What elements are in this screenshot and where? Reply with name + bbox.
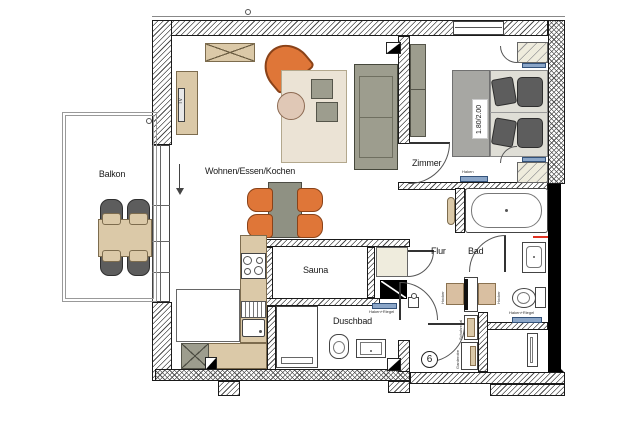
dining-chair: [297, 188, 323, 212]
kitchen-faucet-dot: [259, 330, 262, 333]
bed-size-label: 1.80/2.00: [472, 99, 488, 139]
bedroom-cabinet: [410, 44, 426, 137]
wall-right-crosshatch: [548, 20, 565, 184]
room-label-sauna: Sauna: [303, 265, 328, 275]
stove-burner: [244, 268, 251, 275]
haken-label: Haken: [462, 170, 474, 174]
toilet-bowl-inner: [517, 292, 530, 304]
room-label-flur: Flur: [431, 246, 446, 256]
kitchen-tall-cabinet: [176, 289, 240, 342]
red-marker-line: [533, 236, 548, 238]
entry-direction-arrow: [179, 164, 180, 188]
toilet-duschbad-inner: [333, 341, 345, 354]
room-label-balkon: Balkon: [82, 169, 142, 179]
wall-bottom-right-lower: [490, 384, 565, 396]
kitchen-sink: [242, 319, 265, 337]
room-label-zimmer: Zimmer: [412, 158, 441, 168]
wall-bad-bottom: [485, 322, 548, 330]
hocker-label-right: Hocker: [497, 284, 501, 304]
drainboard: [241, 301, 266, 318]
wardrobe: [517, 42, 548, 63]
wall-table-edge: [464, 279, 468, 310]
bed-duvet: [517, 77, 543, 107]
door-leaf-entrance: [428, 323, 465, 325]
wall-stub-bottom-a: [218, 381, 240, 396]
wall-bottom-left: [155, 369, 410, 381]
room-label-bad: Bad: [468, 246, 483, 256]
corner-symbol: [205, 357, 217, 370]
side-table: [277, 92, 305, 120]
shelf-upper-inner: [467, 318, 475, 337]
wardrobe: [517, 162, 548, 183]
wall-stub-bottom-b: [388, 381, 410, 393]
stool-left: [446, 283, 464, 305]
stove-burner: [256, 257, 263, 264]
window-bedroom-top-line: [455, 27, 502, 28]
floor-plan: TV Haken+Riegel 1.80/2.00 Haken: [0, 0, 640, 427]
roof-edge-line: [152, 16, 565, 17]
dining-chair: [247, 188, 273, 212]
shelf-lower-inner: [470, 346, 476, 366]
shower-bench: [281, 357, 313, 364]
unit-number-badge: 6: [421, 351, 438, 368]
balcony-seat-cushion: [102, 213, 121, 225]
bedroom-cabinet-split: [410, 89, 426, 90]
wall-stub-tub: [455, 188, 465, 233]
sideboard: [205, 43, 255, 62]
floor-cushion: [311, 79, 333, 99]
balcony-seat-cushion: [129, 213, 148, 225]
corner-symbol: [386, 42, 401, 54]
tv-screen: [178, 88, 185, 122]
bed-duvet: [517, 118, 543, 148]
wall-shaft-black: [548, 184, 561, 372]
bed-pillow: [491, 76, 517, 106]
stove-burner: [254, 266, 263, 275]
bed-mattress-split: [490, 112, 548, 113]
balcony-seat-cushion: [102, 250, 121, 262]
sink-duschbad-bowl: [360, 342, 382, 355]
tv-label: TV: [179, 98, 184, 104]
dining-chair: [297, 214, 323, 238]
haken-riegel-label-flur: Haken+Riegel: [369, 310, 394, 314]
flur-closet: [376, 247, 408, 277]
sink-duschbad-dot: [370, 350, 372, 352]
corner-symbol: [387, 358, 401, 371]
wall-stub-shower: [267, 306, 276, 370]
hocker-label-left: Hocker: [441, 284, 445, 304]
bathtub-drain-dot: [505, 209, 508, 212]
haken-riegel-label-bad: Haken+Riegel: [509, 311, 534, 315]
entry-shelf-inner: [530, 337, 533, 363]
sauna-wall-right: [367, 247, 375, 298]
roof-drain-icon: [245, 9, 251, 15]
haken-rail-bedroom: [460, 176, 488, 182]
wall-bottom-right: [410, 372, 565, 384]
sauna-wall-bottom: [265, 298, 380, 306]
bath-shelf: [447, 197, 455, 225]
stove-burner: [243, 256, 252, 265]
washbasin-drain-dot: [533, 256, 535, 258]
nightstand: [522, 157, 546, 162]
floor-cushion: [316, 102, 338, 122]
stool-right: [478, 283, 496, 305]
corner-symbol-black: [548, 356, 564, 372]
balcony-seat-cushion: [129, 250, 148, 262]
toilet-tank: [535, 287, 546, 308]
window-bedroom-top: [453, 21, 504, 35]
nightstand: [522, 63, 546, 68]
wall-bad-side: [478, 312, 488, 372]
room-label-duschbad: Duschbad: [333, 316, 372, 326]
balcony-window-mullion: [160, 145, 161, 302]
sauna-wall-top: [265, 239, 410, 247]
bed-pillow: [491, 117, 517, 147]
balcony-drain-icon: [146, 118, 152, 124]
room-label-wohnen: Wohnen/Essen/Kochen: [205, 166, 295, 176]
sofa-seat-split: [359, 117, 393, 118]
haken-riegel-rail-bad: [512, 317, 542, 323]
entry-direction-arrowhead: [176, 188, 184, 195]
